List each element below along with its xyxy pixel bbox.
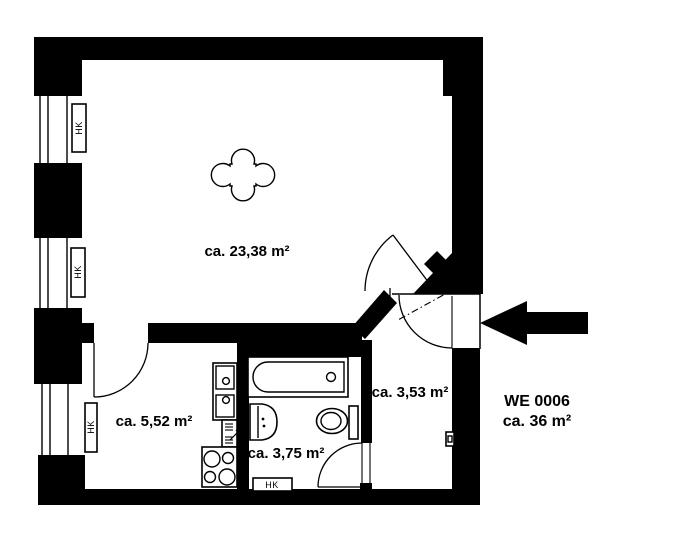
door-swing-arc <box>318 443 362 487</box>
wall-left-pier-3 <box>34 308 82 384</box>
radiator-1-label: HK <box>74 121 84 135</box>
door-swing-arc <box>365 235 393 291</box>
washbasin-icon <box>250 404 277 440</box>
bathroom-area-label: ca. 3,75 m² <box>248 445 325 462</box>
wall-bathroom-top <box>237 343 362 357</box>
wall-duct-icon <box>349 406 358 439</box>
toilet-icon <box>317 409 348 434</box>
wall-kitchen-bath <box>237 343 249 489</box>
floor-plan-page: HK HK HK HK <box>0 0 676 555</box>
door-swing-arc <box>399 295 452 348</box>
bathroom-fixtures <box>248 357 358 440</box>
wall-right-lower <box>452 348 480 505</box>
bathtub-icon <box>248 357 348 397</box>
radiator-4-label: HK <box>265 480 279 490</box>
wall-right-upper <box>452 60 483 294</box>
wall-left-pier-1 <box>34 37 82 96</box>
kitchen-sink-icon <box>213 363 237 420</box>
kitchen-room-area-label: ca. 5,52 m² <box>116 413 193 430</box>
kitchen-block <box>202 363 242 487</box>
living-room-area-label: ca. 23,38 m² <box>204 243 289 260</box>
unit-area-label: ca. 36 m² <box>503 413 571 430</box>
door-swing-arc <box>94 343 148 397</box>
wall-left-pier-4 <box>38 455 85 499</box>
wall-divider-left-stub <box>82 323 94 343</box>
radiator-2-label: HK <box>73 265 83 279</box>
radiator-3-label: HK <box>86 420 96 434</box>
wall-left-pier-2 <box>34 163 82 238</box>
hallway-area-label: ca. 3,53 m² <box>372 384 449 401</box>
radiator-3: HK <box>85 403 97 452</box>
radiator-1: HK <box>72 104 86 152</box>
radiator-2: HK <box>71 248 85 297</box>
electric-panel-icon <box>446 432 454 446</box>
wall-right-step <box>443 60 452 96</box>
window-3 <box>42 384 68 455</box>
wall-divider <box>148 323 362 343</box>
windows <box>40 96 68 455</box>
ceiling-lamp-icon <box>211 149 274 201</box>
unit-id-label: WE 0006 <box>504 393 570 410</box>
radiator-4: HK <box>253 478 292 491</box>
entrance-arrow-icon <box>480 301 588 345</box>
window-2 <box>40 238 67 308</box>
wall-top <box>34 37 483 60</box>
wall-bath-hall <box>361 340 372 443</box>
door-kitchen-room <box>94 343 148 397</box>
window-1 <box>40 96 67 163</box>
floor-plan-drawing: HK HK HK HK <box>0 0 676 555</box>
entrance-door <box>392 288 480 349</box>
stove-icon <box>202 447 237 487</box>
door-bathroom <box>318 443 370 487</box>
